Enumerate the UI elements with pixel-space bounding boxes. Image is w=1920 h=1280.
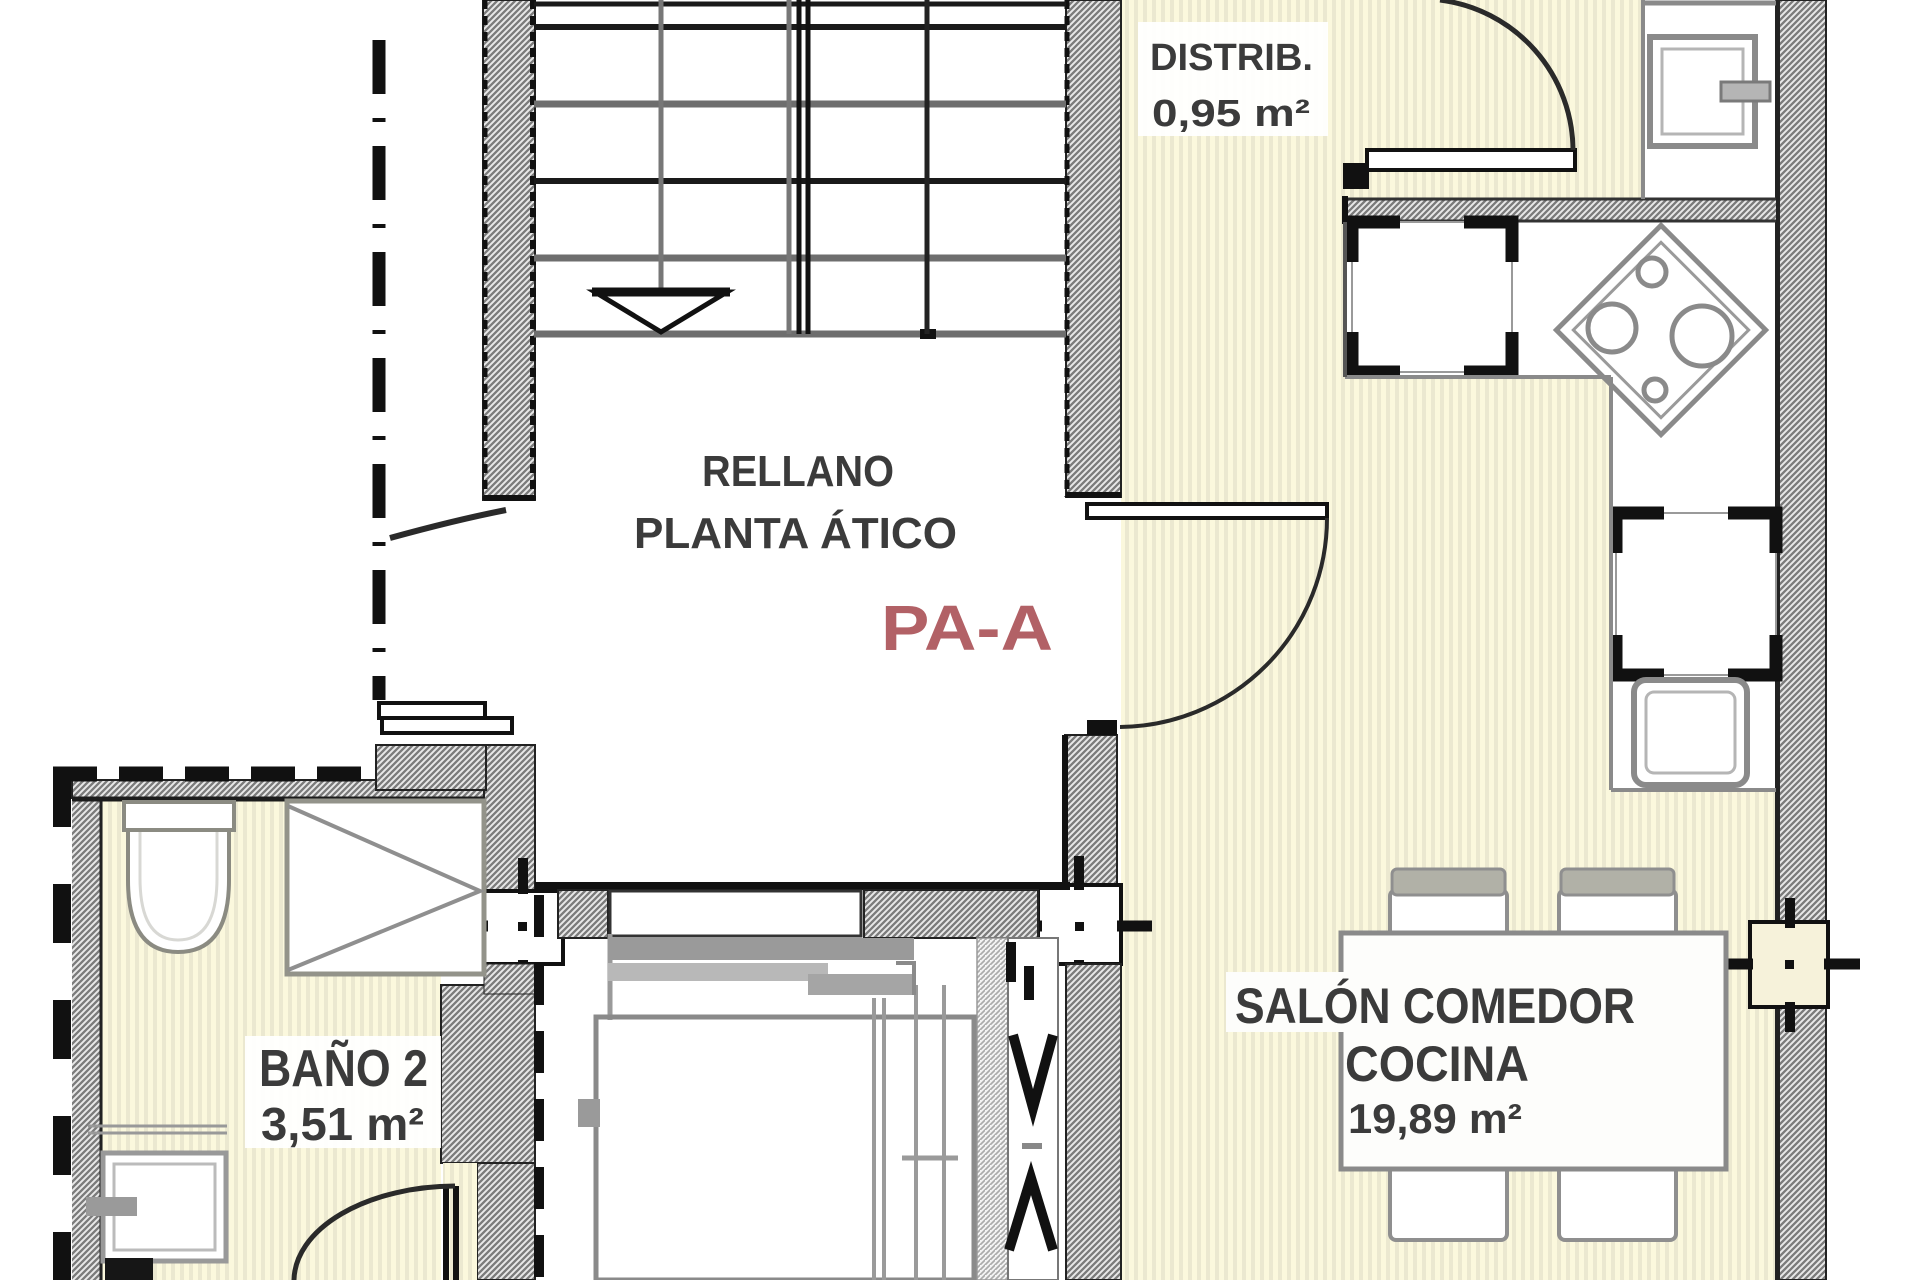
- svg-text:19,89 m²: 19,89 m²: [1348, 1095, 1522, 1142]
- svg-text:SALÓN COMEDOR: SALÓN COMEDOR: [1235, 978, 1635, 1034]
- svg-text:PLANTA ÁTICO: PLANTA ÁTICO: [634, 508, 957, 558]
- svg-text:BAÑO 2: BAÑO 2: [259, 1039, 428, 1098]
- svg-text:COCINA: COCINA: [1345, 1036, 1529, 1092]
- svg-text:3,51 m²: 3,51 m²: [261, 1098, 424, 1150]
- svg-text:0,95 m²: 0,95 m²: [1152, 93, 1310, 135]
- svg-text:PA-A: PA-A: [881, 592, 1053, 664]
- svg-text:RELLANO: RELLANO: [702, 447, 894, 496]
- svg-text:DISTRIB.: DISTRIB.: [1150, 37, 1313, 79]
